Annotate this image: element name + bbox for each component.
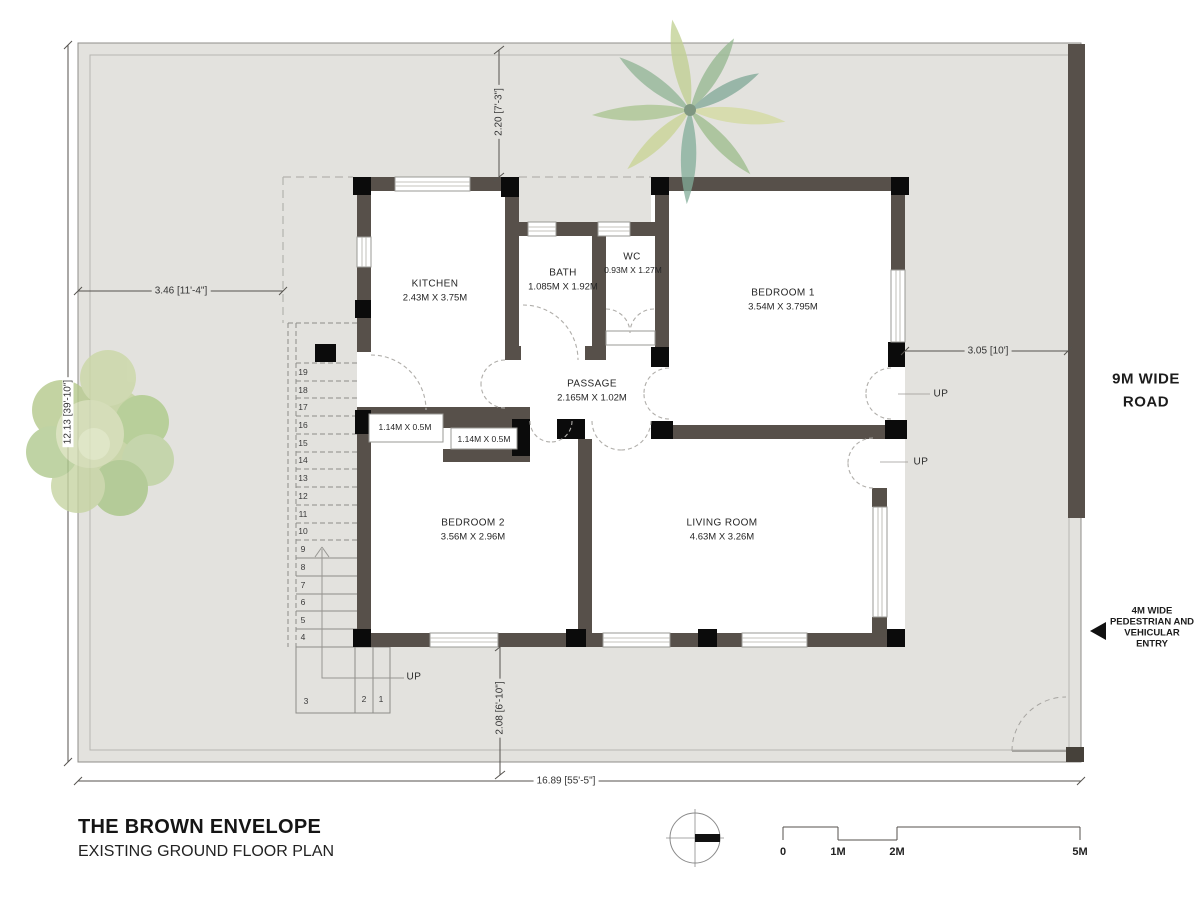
dim-site-width: 16.89 [55'-5"]: [534, 776, 599, 787]
wc-shelf: [606, 331, 655, 345]
room-label-bath: BATH: [549, 268, 577, 279]
scale-label-0: 0: [780, 846, 786, 858]
scale-label-1m: 1M: [830, 846, 845, 858]
road-label-line2: ROAD: [1123, 394, 1169, 411]
stair-number: 18: [298, 385, 307, 395]
stair-number: 15: [298, 438, 307, 448]
dim-left-setback: 3.46 [11'-4"]: [152, 286, 211, 297]
stair-number: 6: [301, 597, 306, 607]
room-size-bath: 1.085M X 1.92M: [528, 282, 598, 293]
room-label-bedroom1: BEDROOM 1: [751, 288, 815, 299]
entry-label-line1: 4M WIDE: [1132, 606, 1173, 617]
scale-label-5m: 5M: [1072, 846, 1087, 858]
stair-number: 17: [298, 402, 307, 412]
road-label-line1: 9M WIDE: [1112, 371, 1180, 388]
north-arrow-icon: [666, 809, 724, 867]
scale-bar: [783, 827, 1080, 840]
dim-bottom-setback: 2.08 [6'-10"]: [495, 678, 506, 737]
entry-label-line4: ENTRY: [1136, 639, 1168, 650]
stair-winder-number: 1: [379, 694, 384, 704]
up-label-living: UP: [914, 457, 929, 468]
drawing-title: EXISTING GROUND FLOOR PLAN: [78, 843, 334, 861]
room-label-passage: PASSAGE: [567, 379, 617, 390]
dim-site-depth: 12.13 [39'-10"]: [63, 377, 74, 447]
room-label-bedroom2: BEDROOM 2: [441, 518, 505, 529]
stair-number: 19: [298, 367, 307, 377]
room-size-bedroom1: 3.54M X 3.795M: [748, 302, 818, 313]
entry-label-line3: VEHICULAR: [1124, 628, 1179, 639]
stair-winder-number: 3: [304, 696, 309, 706]
stair-number: 12: [298, 491, 307, 501]
up-label-stairs: UP: [407, 672, 422, 683]
room-label-kitchen: KITCHEN: [412, 279, 459, 290]
room-size-passage: 2.165M X 1.02M: [557, 393, 627, 404]
room-size-bedroom2: 3.56M X 2.96M: [441, 532, 505, 543]
closet-right-size: 1.14M X 0.5M: [458, 434, 511, 444]
plan-drawing: [0, 0, 1200, 900]
scale-label-2m: 2M: [889, 846, 904, 858]
entry-arrow-icon: [1090, 622, 1106, 640]
stair-number: 10: [298, 526, 307, 536]
stair-number: 5: [301, 615, 306, 625]
room-label-wc: WC: [623, 252, 640, 263]
dim-right-setback: 3.05 [10']: [965, 346, 1012, 357]
stair-landing-post: [315, 344, 336, 362]
stair-number: 11: [299, 509, 308, 519]
floor-plan-canvas: KITCHEN 2.43M X 3.75M BATH 1.085M X 1.92…: [0, 0, 1200, 900]
stair-number: 4: [301, 632, 306, 642]
entry-label-line2: PEDESTRIAN AND: [1110, 617, 1194, 628]
room-size-living: 4.63M X 3.26M: [690, 532, 754, 543]
stair-number: 7: [301, 580, 306, 590]
up-label-bedroom1: UP: [934, 389, 949, 400]
stair-number: 16: [298, 420, 307, 430]
room-label-living: LIVING ROOM: [686, 518, 757, 529]
dim-top-setback: 2.20 [7'-3"]: [494, 85, 505, 139]
stair-number: 14: [298, 455, 307, 465]
stair-number: 13: [298, 473, 307, 483]
closet-left-size: 1.14M X 0.5M: [379, 422, 432, 432]
room-size-kitchen: 2.43M X 3.75M: [403, 293, 467, 304]
project-title: THE BROWN ENVELOPE: [78, 816, 321, 839]
stair-number: 9: [301, 544, 306, 554]
stair-number: 8: [301, 562, 306, 572]
stair-winder-number: 2: [362, 694, 367, 704]
room-size-wc: 0.93M X 1.27M: [604, 265, 662, 275]
